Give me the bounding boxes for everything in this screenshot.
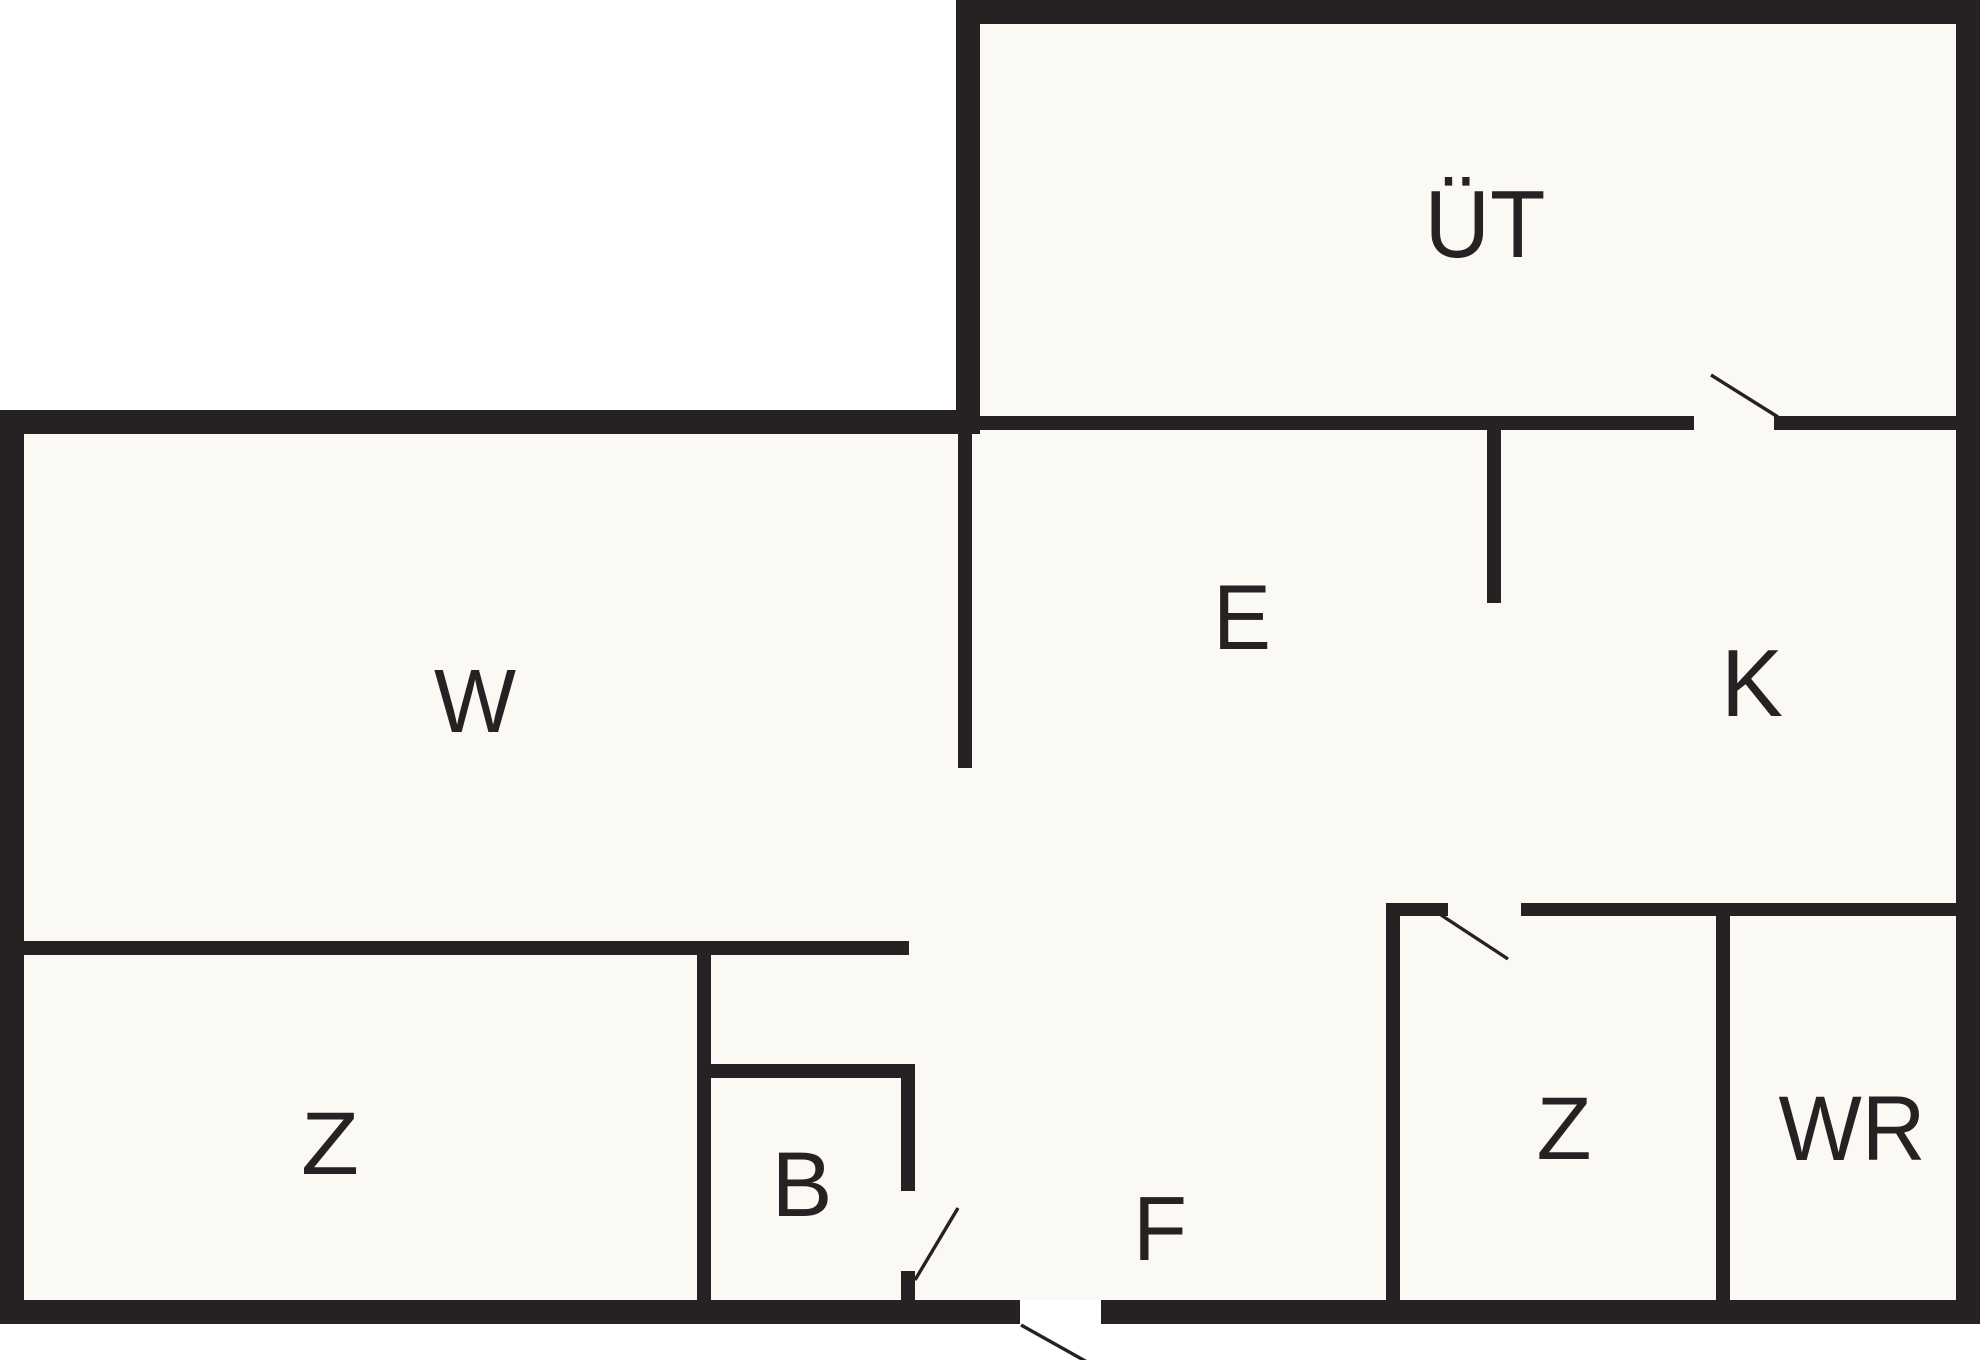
svg-text:K: K (1721, 630, 1783, 737)
svg-text:W: W (434, 652, 516, 752)
svg-text:WR: WR (1779, 1078, 1926, 1180)
svg-text:ÜT: ÜT (1425, 171, 1546, 278)
svg-text:F: F (1133, 1179, 1187, 1280)
svg-text:Z: Z (301, 1093, 359, 1193)
svg-text:E: E (1213, 567, 1271, 669)
svg-text:Z: Z (1537, 1078, 1592, 1178)
svg-text:B: B (772, 1134, 833, 1236)
